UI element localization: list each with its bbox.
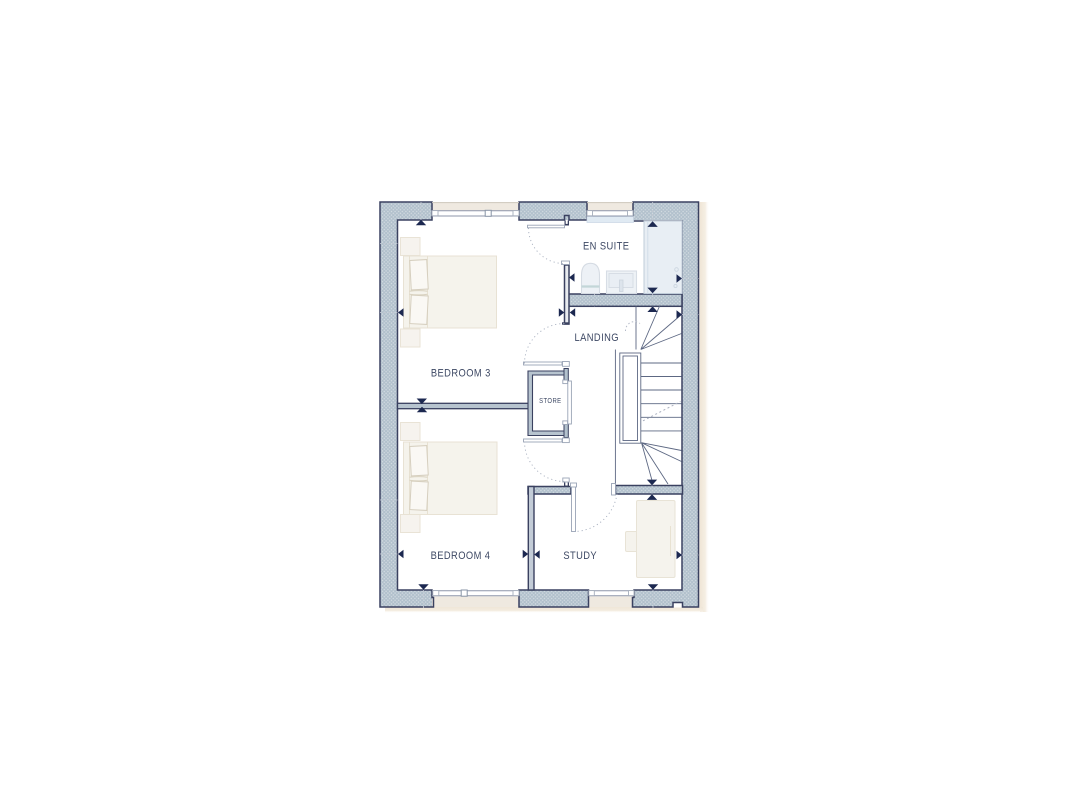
svg-text:STUDY: STUDY [563,550,597,562]
svg-text:LANDING: LANDING [574,332,618,344]
svg-text:BEDROOM 4: BEDROOM 4 [431,550,491,562]
svg-text:EN SUITE: EN SUITE [583,241,629,253]
svg-text:BEDROOM 3: BEDROOM 3 [431,368,491,380]
svg-text:STORE: STORE [539,398,562,406]
